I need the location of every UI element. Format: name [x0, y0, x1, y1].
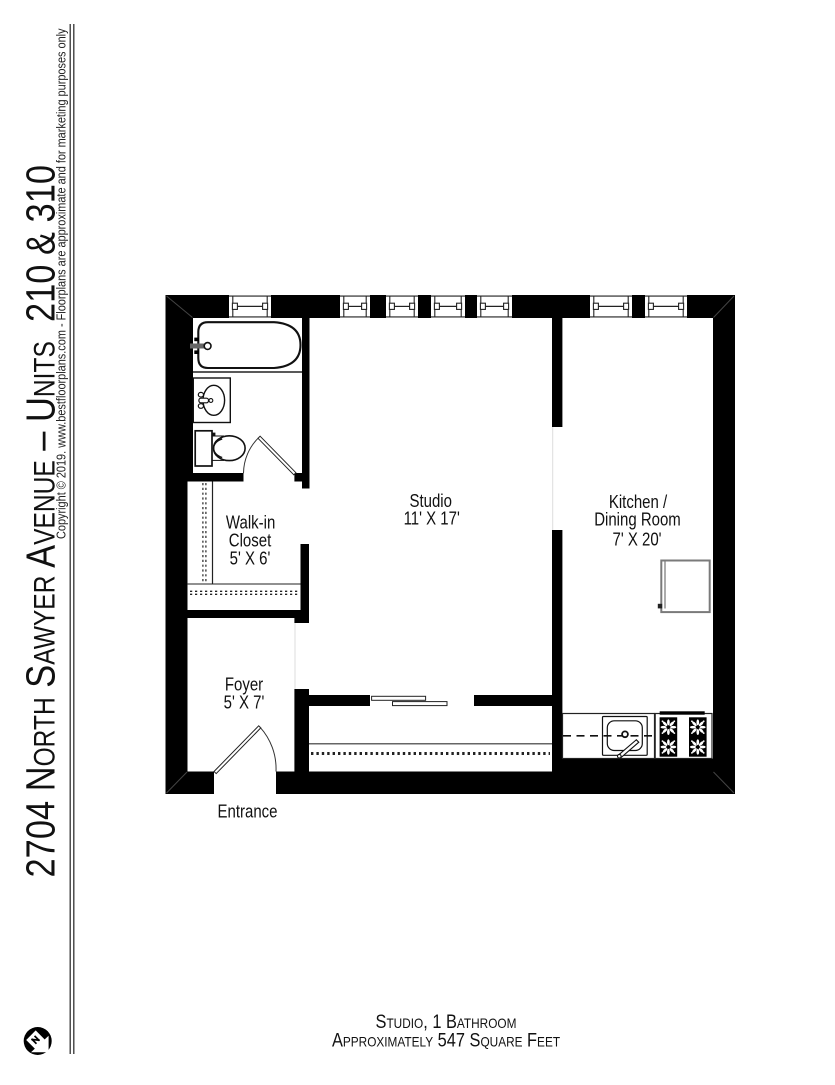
svg-text:5' X 6': 5' X 6' — [230, 548, 271, 569]
svg-text:Approximately 547 Square Feet: Approximately 547 Square Feet — [332, 1029, 560, 1051]
svg-text:Entrance: Entrance — [218, 801, 278, 822]
svg-text:5' X 7': 5' X 7' — [224, 692, 265, 713]
svg-text:7' X 20': 7' X 20' — [612, 529, 661, 550]
svg-text:11' X 17': 11' X 17' — [404, 508, 460, 529]
svg-text:Dining Room: Dining Room — [594, 509, 681, 530]
svg-text:Copyright © 2019. www.bestfloo: Copyright © 2019. www.bestfloorplans.com… — [53, 28, 68, 539]
